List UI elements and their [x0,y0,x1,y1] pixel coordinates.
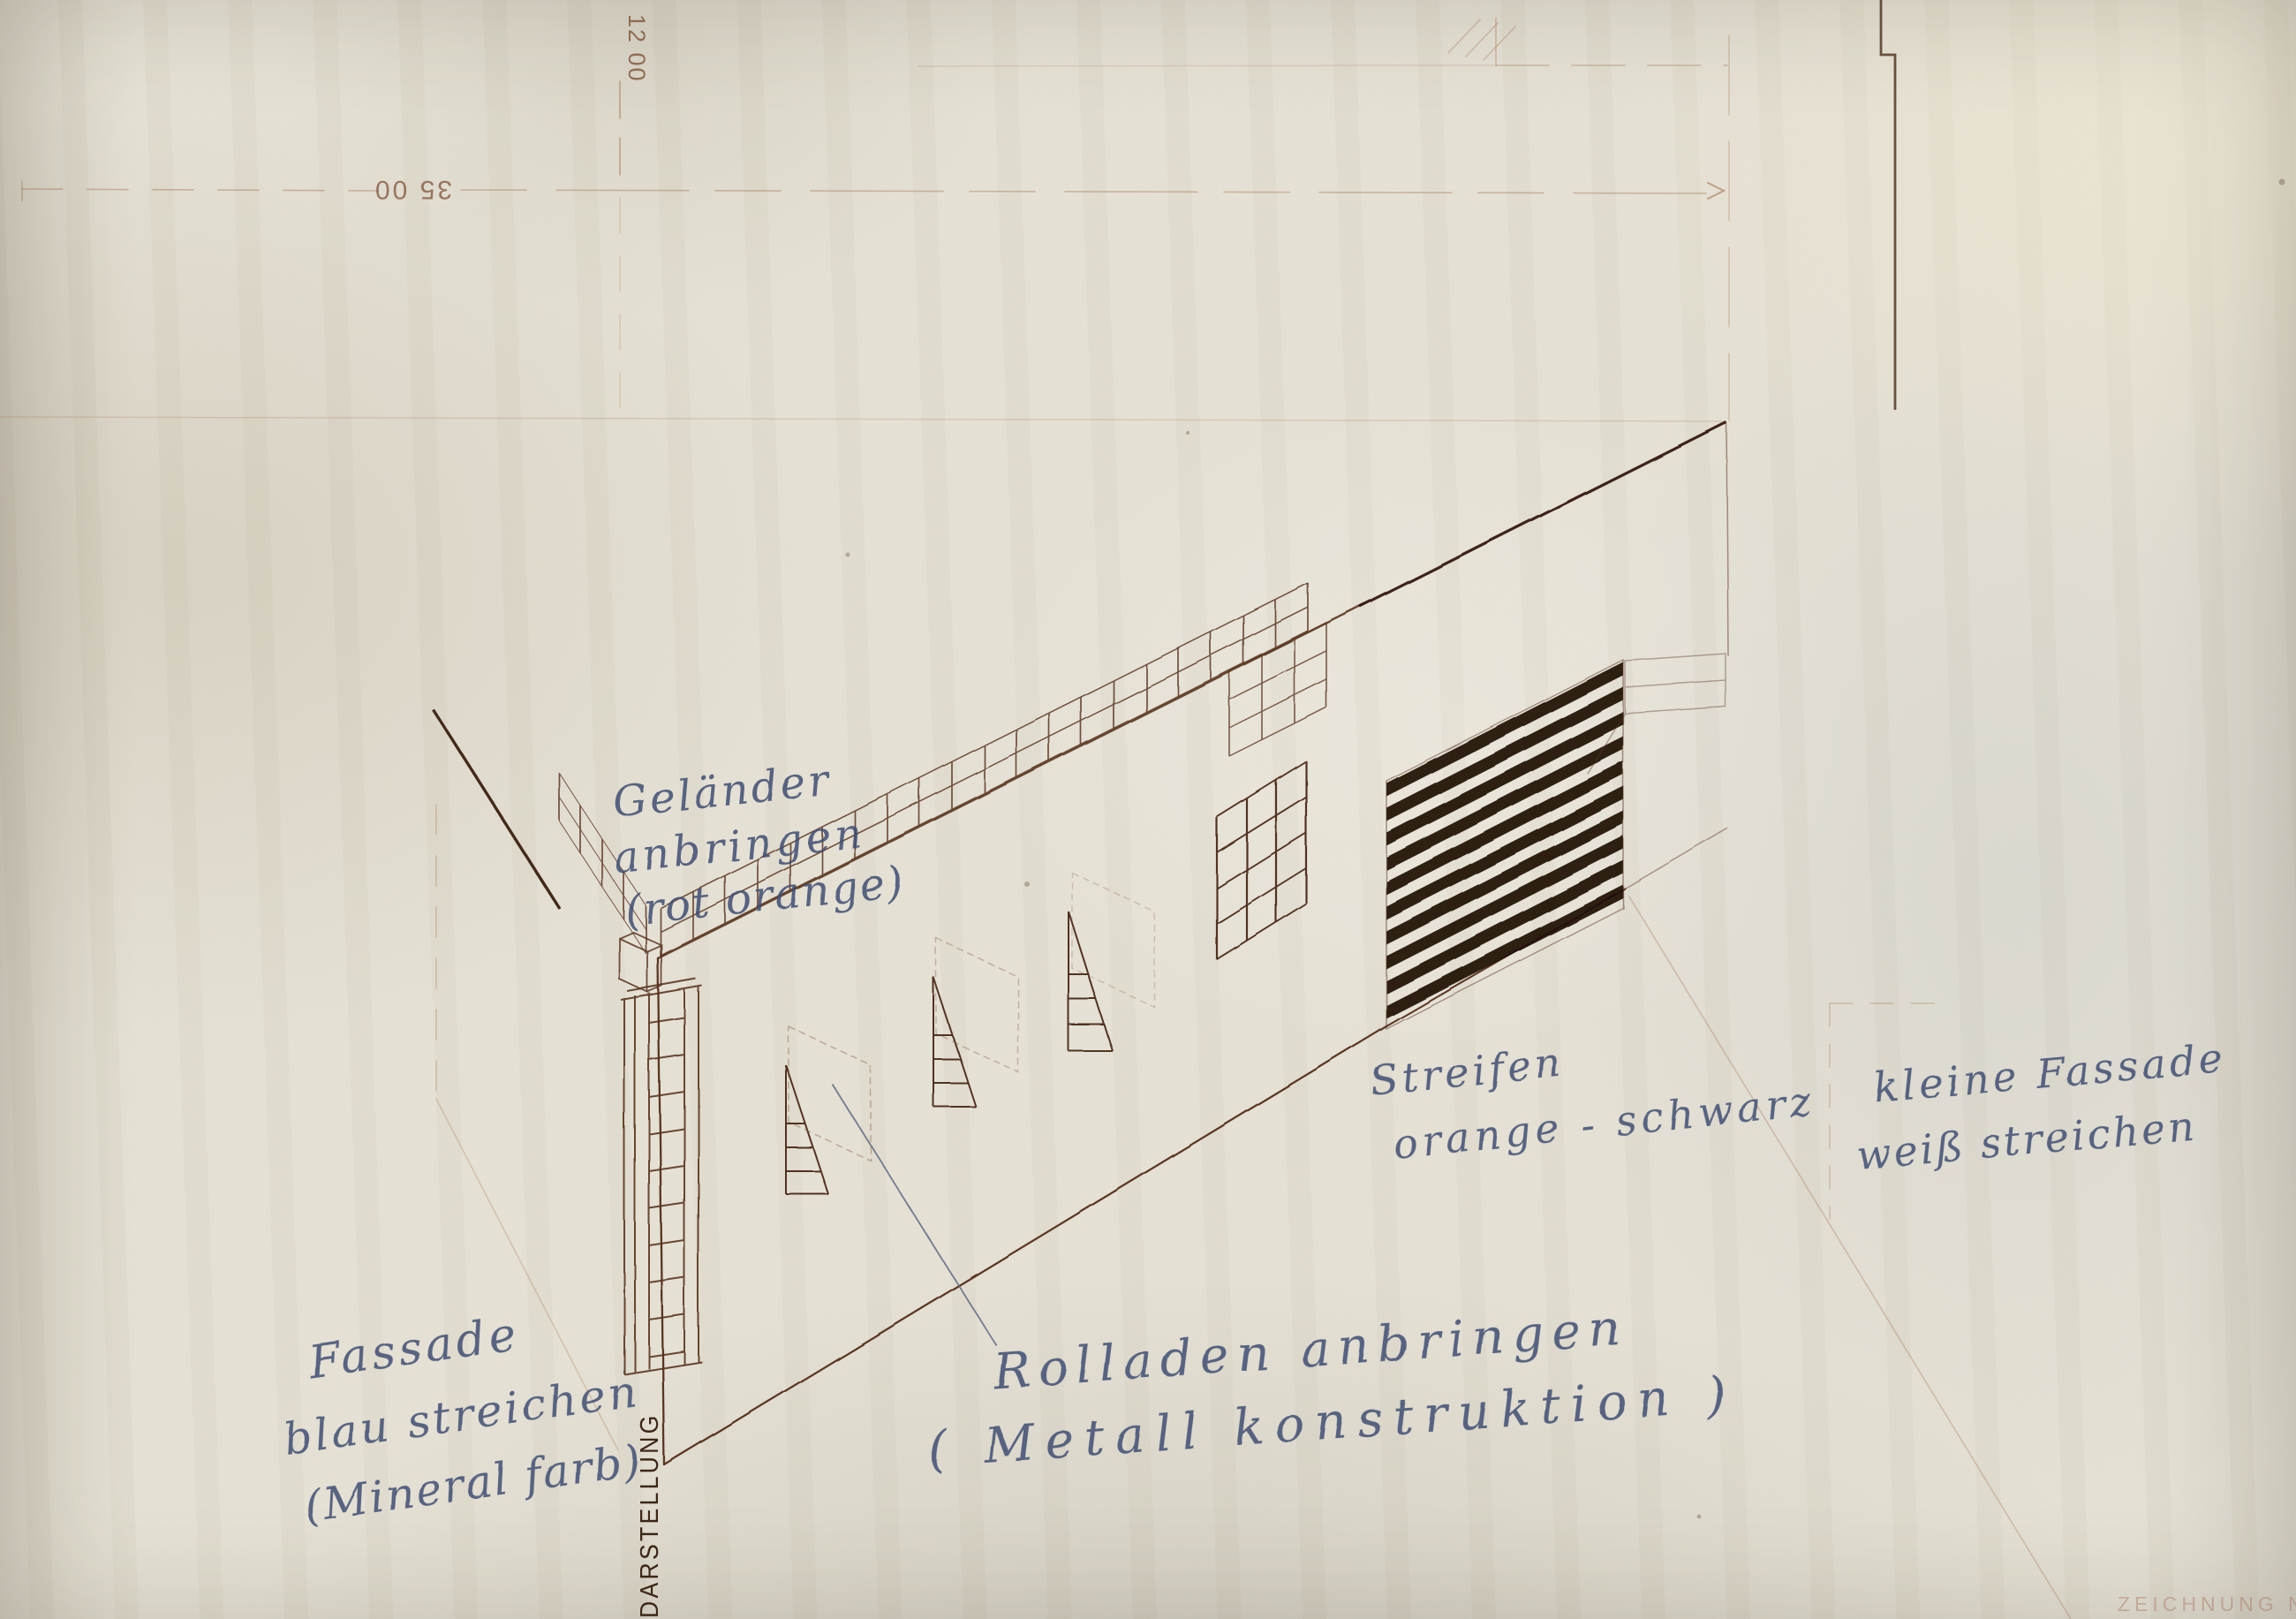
drawing-canvas: Geländer anbringen (rot orange) Fassade … [0,0,2296,1619]
paper-grain-overlay [0,0,2296,1619]
scanned-drawing-sheet: Geländer anbringen (rot orange) Fassade … [0,0,2296,1619]
